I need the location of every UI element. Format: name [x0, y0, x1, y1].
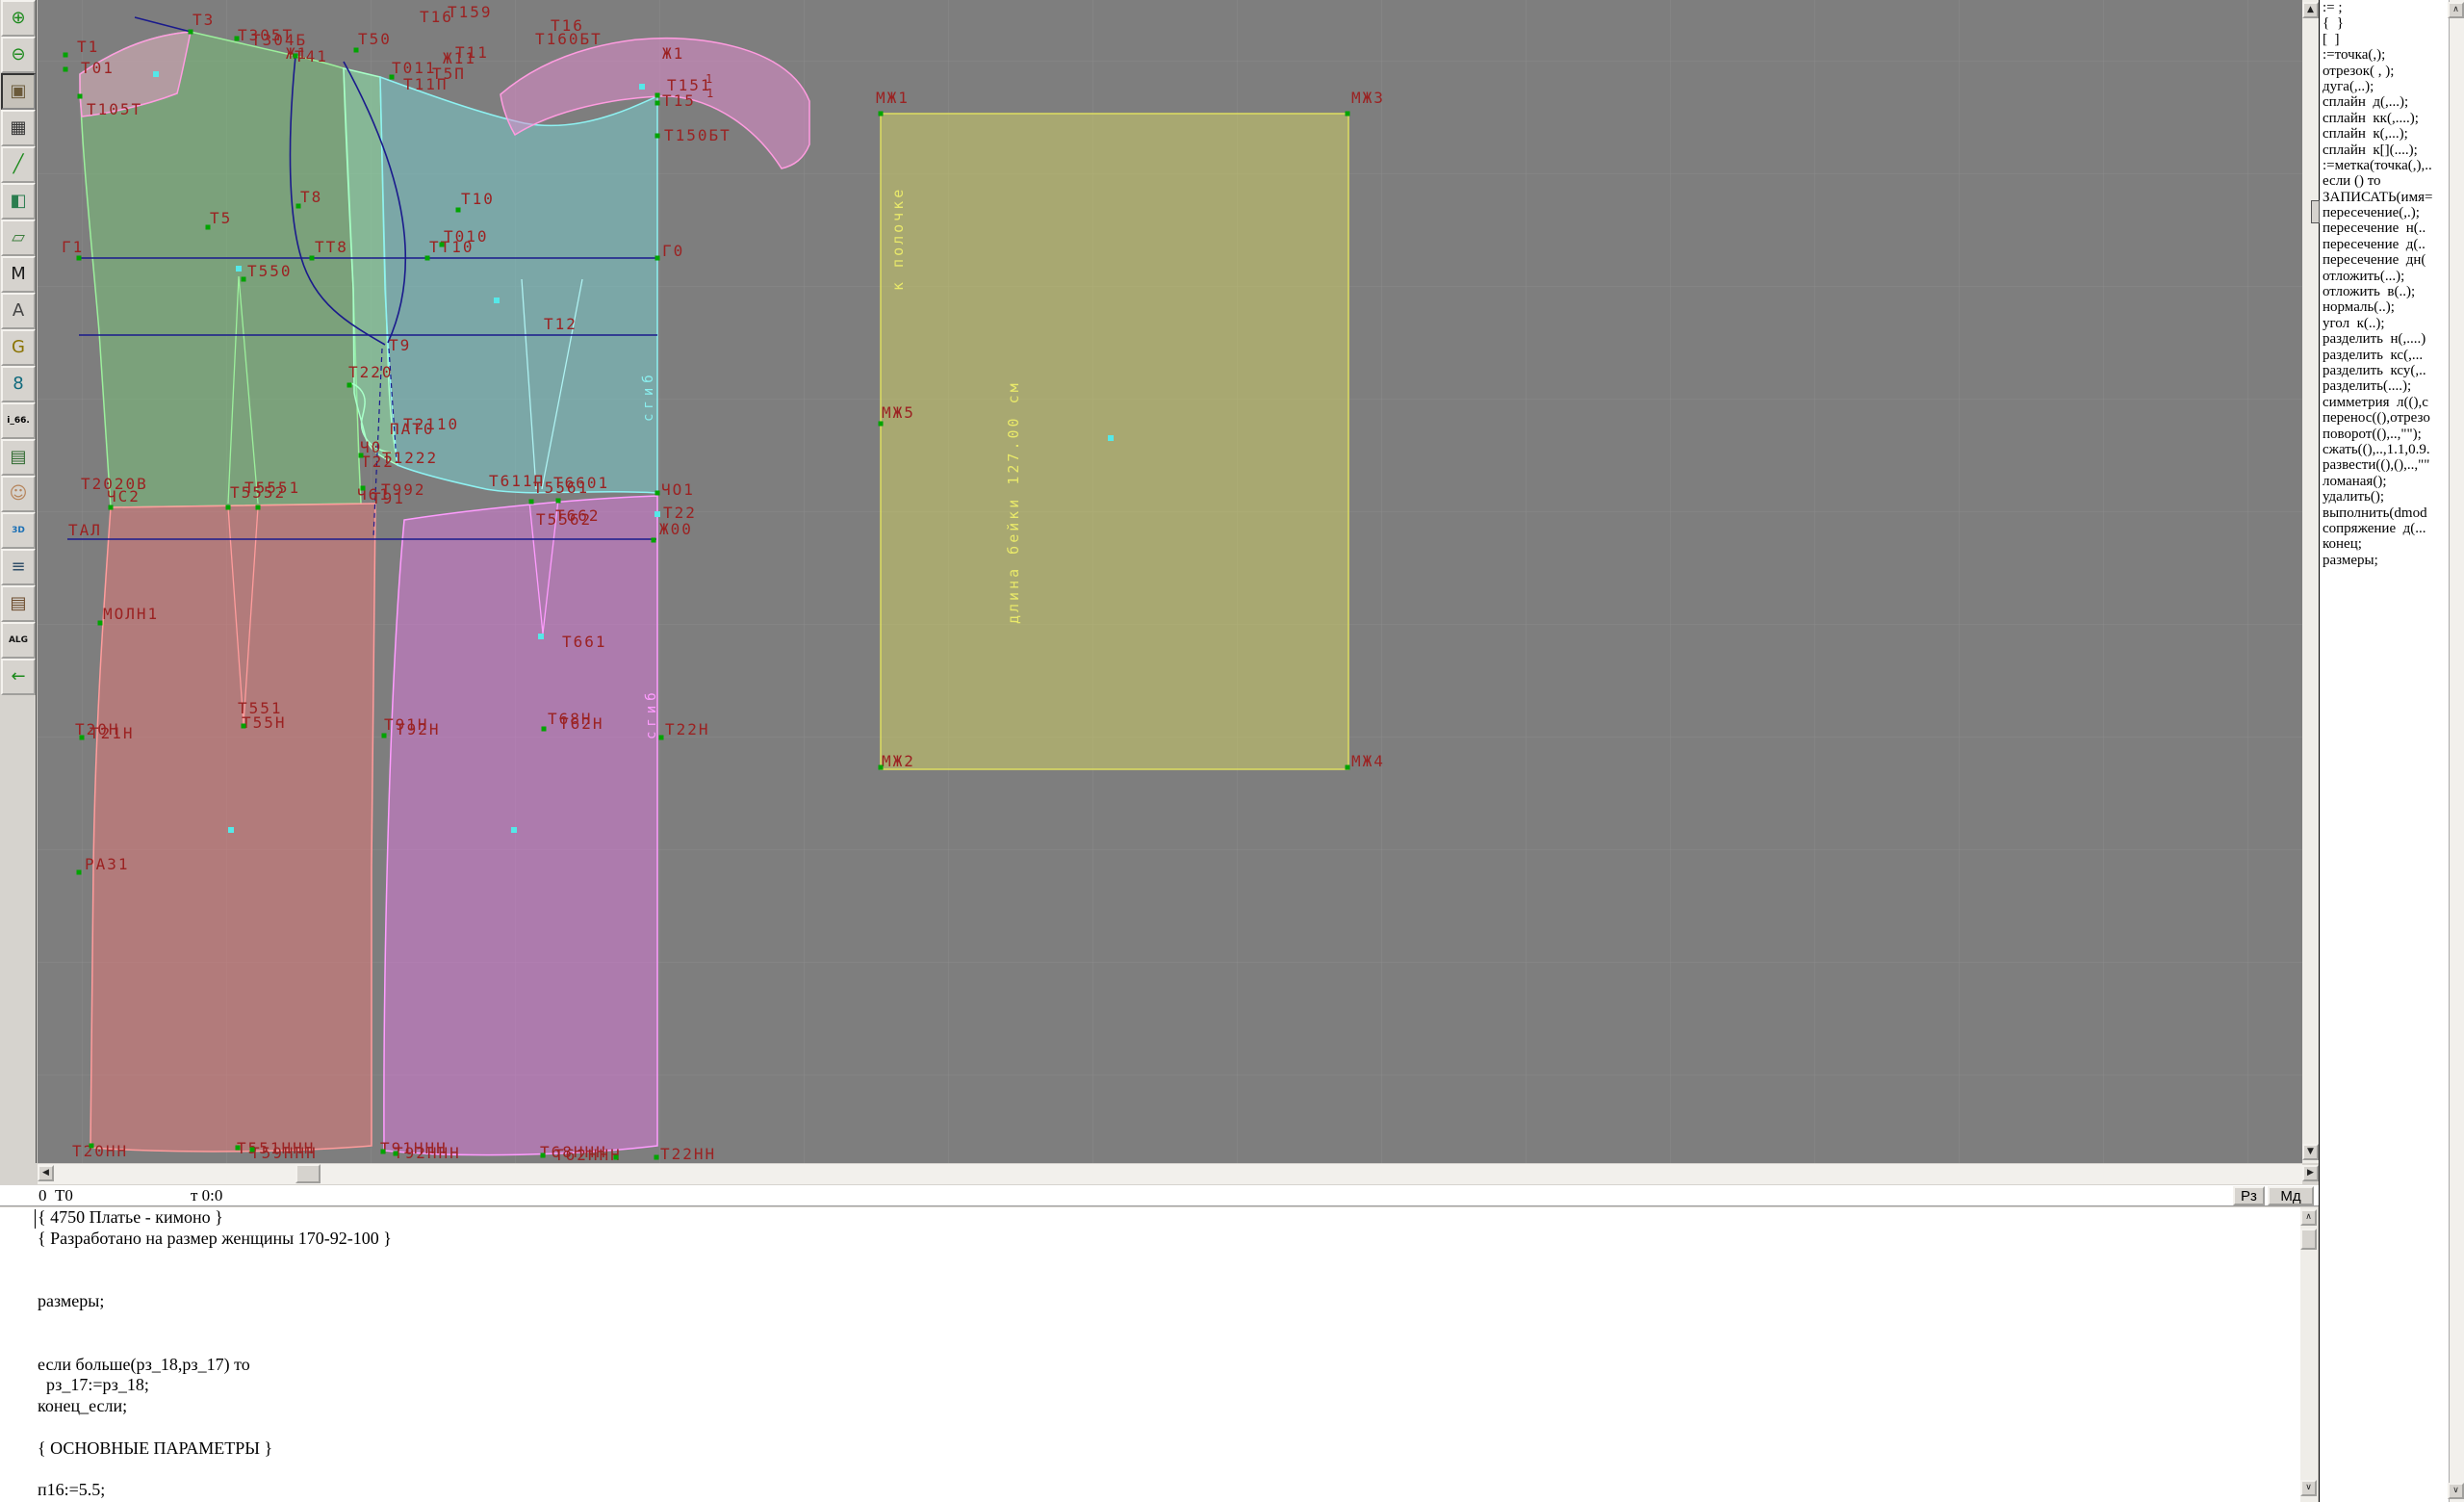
editor-line: рз_17:=рз_18;: [38, 1375, 2300, 1396]
pattern-point: [347, 383, 352, 388]
g-curves-icon[interactable]: G: [1, 329, 36, 366]
rz-button[interactable]: Рз: [2233, 1186, 2265, 1205]
point-label: Т01: [81, 59, 115, 77]
left-toolbar: ⊕⊖▣▦╱◧▱MAG8i_66.▤☺3D≡▤ALG←: [0, 0, 37, 1163]
exit-icon[interactable]: ←: [1, 659, 36, 695]
list-icon[interactable]: ≡: [1, 549, 36, 585]
piece-board-icon[interactable]: ▱: [1, 220, 36, 256]
point-label: Т1: [77, 38, 99, 56]
text-caret: [35, 1209, 36, 1229]
pattern-point: [538, 634, 544, 639]
pattern-point: [655, 101, 660, 106]
pattern-point: [654, 511, 660, 517]
command-item[interactable]: конец;: [2320, 536, 2449, 552]
point-label: МЖ5: [882, 403, 915, 422]
point-label: Т62Н: [559, 714, 604, 733]
command-item[interactable]: поворот((),..,"");: [2320, 427, 2449, 442]
point-label: Т62ННН: [554, 1146, 622, 1163]
point-label: Г1: [62, 238, 84, 256]
pattern-point: [614, 1155, 619, 1160]
piece-board-icon: ▱: [12, 229, 25, 246]
zoom-out-icon: ⊖: [11, 46, 25, 64]
pattern-point: [511, 827, 517, 833]
point-label: Г0: [662, 242, 684, 260]
point-label: Т20НН: [72, 1142, 128, 1160]
point-label: Т92ННН: [394, 1144, 461, 1162]
status-cursor: т 0:0: [191, 1186, 222, 1205]
flip-picture-icon[interactable]: ◧: [1, 183, 36, 220]
pattern-point: [655, 93, 660, 98]
command-item[interactable]: угол к(..);: [2320, 316, 2449, 331]
pattern-point: [296, 204, 301, 209]
pattern-point: [879, 112, 884, 117]
pattern-point: [242, 277, 246, 282]
command-item[interactable]: пересечение д(..: [2320, 237, 2449, 252]
point-label: Т15: [662, 91, 696, 110]
command-item[interactable]: отложить(...);: [2320, 269, 2449, 284]
pattern-point: [879, 422, 884, 427]
point-label: Т6601: [553, 474, 609, 492]
view-piece-icon: ▣: [10, 83, 26, 100]
i66-icon: i_66.: [7, 417, 30, 426]
pattern-point: [64, 53, 68, 58]
point-label: ЧО1: [661, 480, 695, 499]
scroll-right-button[interactable]: ▶: [2302, 1165, 2319, 1181]
editor-scroll-up[interactable]: ∧: [2300, 1209, 2317, 1226]
pattern-point: [529, 500, 534, 505]
segment-icon[interactable]: ╱: [1, 146, 36, 183]
point-label: Т992: [381, 480, 426, 499]
point-label: МЖ1: [876, 89, 910, 107]
pattern-point: [242, 724, 246, 729]
pattern-point: [879, 765, 884, 770]
point-label: МЖ4: [1351, 752, 1385, 770]
point-label: Т5551: [244, 479, 300, 497]
pattern-point: [90, 1144, 94, 1149]
point-label: Т21Н: [90, 724, 135, 742]
pattern-m-icon[interactable]: M: [1, 256, 36, 293]
command-item[interactable]: перенос((),отрезо: [2320, 410, 2449, 426]
point-label: Ж1: [662, 44, 684, 63]
command-item[interactable]: пересечение н(..: [2320, 220, 2449, 236]
point-label: МОЛН1: [103, 605, 159, 623]
command-item[interactable]: симметрия л((),с: [2320, 395, 2449, 410]
point-label: Т11: [455, 43, 489, 62]
canvas-hscrollbar[interactable]: [38, 1164, 2302, 1184]
zoom-out-icon[interactable]: ⊖: [1, 37, 36, 73]
point-label: Т150БТ: [664, 126, 731, 144]
command-item[interactable]: дуга(,..);: [2320, 79, 2449, 94]
command-item[interactable]: пересечение дн(: [2320, 252, 2449, 268]
command-item[interactable]: ломаная();: [2320, 474, 2449, 489]
command-item[interactable]: сплайн к(,...);: [2320, 126, 2449, 142]
point-label: Т22НН: [660, 1145, 716, 1163]
pattern-canvas[interactable]: Т1Т01Т105ТТ3Т305ТТ304БЖ1Т41Т50Т011Т11ПТ5…: [38, 0, 2302, 1163]
alg-icon[interactable]: ALG: [1, 622, 36, 659]
command-item[interactable]: :=метка(точка(,),..: [2320, 158, 2449, 173]
command-item[interactable]: [ ]: [2320, 32, 2449, 47]
point-label: Т59ННН: [250, 1144, 318, 1162]
ruler-8-icon: 8: [13, 375, 23, 393]
command-item[interactable]: выполнить(dmod: [2320, 505, 2449, 521]
pattern-point: [354, 48, 359, 53]
piece-binding-rect[interactable]: [881, 114, 1348, 769]
editor-vscrollbar[interactable]: [2300, 1207, 2318, 1502]
pattern-point: [556, 499, 561, 504]
pattern-point: [153, 71, 159, 77]
segment-icon: ╱: [13, 156, 24, 173]
point-label: МЖ3: [1351, 89, 1385, 107]
pattern-point: [659, 736, 664, 740]
pattern-point: [652, 538, 656, 543]
point-label: РАЗ1: [85, 855, 130, 873]
point-label: Т55Н: [242, 713, 287, 732]
drafting-a-icon: A: [13, 302, 24, 320]
command-item[interactable]: сплайн д(,...);: [2320, 94, 2449, 110]
command-list-panel: := ;{ }[ ]:=точка(,);отрезок( , );дуга(,…: [2319, 0, 2449, 1502]
pattern-point: [206, 225, 211, 230]
editor-line: [38, 1250, 2300, 1271]
command-item[interactable]: нормаль(..);: [2320, 299, 2449, 315]
pattern-point: [639, 84, 645, 90]
editor-line: [38, 1460, 2300, 1481]
status-left: 0 Т0: [38, 1186, 73, 1205]
point-label: Т662: [555, 506, 601, 525]
point-label: длина бейки 127.00 см: [1005, 380, 1022, 624]
pattern-point: [654, 1155, 659, 1160]
photo-icon[interactable]: ☺: [1, 476, 36, 512]
ruler-8-icon[interactable]: 8: [1, 366, 36, 402]
pattern-point: [77, 256, 82, 261]
command-item[interactable]: развести((),(),..,"": [2320, 457, 2449, 473]
point-label: Т105Т: [87, 100, 142, 118]
editor-line: конец_если;: [38, 1396, 2300, 1417]
pattern-point: [542, 727, 547, 732]
photo-icon: ☺: [10, 485, 28, 503]
point-label: к полочке: [889, 187, 907, 291]
panel-splitter[interactable]: [2311, 200, 2320, 223]
panel-scroll-down[interactable]: ∨: [2448, 1483, 2464, 1499]
pattern-point: [310, 256, 315, 261]
point-label: Т50: [358, 30, 392, 48]
command-item[interactable]: сплайн кк(,....);: [2320, 111, 2449, 126]
editor-line: { Разработано на размер женщины 170-92-1…: [38, 1229, 2300, 1250]
command-item[interactable]: { }: [2320, 15, 2449, 31]
point-label: Т550: [247, 262, 293, 280]
pattern-point: [425, 256, 430, 261]
point-label: ЧС2: [107, 487, 141, 505]
point-label: Т10: [461, 190, 495, 208]
pattern-m-icon: M: [11, 266, 26, 283]
editor-line: [38, 1417, 2300, 1438]
pattern-point: [1346, 765, 1350, 770]
pattern-point: [655, 134, 660, 139]
point-label: Т220: [348, 363, 394, 381]
command-item[interactable]: := ;: [2320, 0, 2449, 15]
point-label: Т1222: [382, 449, 438, 467]
threed-icon[interactable]: 3D: [1, 512, 36, 549]
pattern-point: [294, 54, 298, 59]
pattern-point: [64, 67, 68, 72]
editor-line: { 4750 Платье - кимоно }: [38, 1207, 2300, 1229]
command-item[interactable]: разделить кс(,...: [2320, 348, 2449, 363]
pattern-point: [77, 870, 82, 875]
pattern-point: [382, 734, 387, 738]
pattern-point: [80, 736, 85, 740]
status-bar: 0 Т0 т 0:0 Рз Мд: [0, 1185, 2319, 1206]
table-icon: ▤: [10, 449, 26, 466]
point-label: Т661: [562, 633, 607, 651]
scroll-left-button[interactable]: ◀: [38, 1165, 54, 1181]
point-label: Т2110: [403, 415, 459, 433]
pattern-point: [394, 1152, 398, 1156]
books-icon[interactable]: ▤: [1, 585, 36, 622]
pattern-point: [1108, 435, 1114, 441]
command-item[interactable]: пересечение(,.);: [2320, 205, 2449, 220]
panel-vscrollbar[interactable]: [2449, 0, 2464, 1502]
grid-icon[interactable]: ▦: [1, 110, 36, 146]
command-item[interactable]: сопряжение д(...: [2320, 521, 2449, 536]
editor-scroll-thumb[interactable]: [2300, 1229, 2317, 1250]
point-label: Т41: [295, 47, 328, 65]
pattern-point: [381, 1150, 386, 1154]
pattern-point: [235, 37, 240, 41]
command-item[interactable]: если () то: [2320, 173, 2449, 189]
editor-scroll-down[interactable]: ∨: [2300, 1480, 2317, 1496]
command-item[interactable]: удалить();: [2320, 489, 2449, 505]
command-item[interactable]: сжать((),..,1.1,0.9.: [2320, 442, 2449, 457]
point-label: МЖ2: [882, 752, 915, 770]
pattern-point: [359, 453, 364, 458]
pattern-point: [98, 621, 103, 626]
piece-front-skirt[interactable]: [384, 496, 657, 1155]
md-button[interactable]: Мд: [2268, 1186, 2314, 1205]
pattern-point: [655, 256, 660, 261]
point-label: Т22Н: [665, 720, 710, 738]
point-label: 1: [706, 87, 715, 100]
point-label: Т3: [192, 11, 215, 29]
pattern-point: [361, 486, 366, 491]
drafting-a-icon[interactable]: A: [1, 293, 36, 329]
pattern-point: [655, 491, 660, 496]
point-label: Т160БТ: [535, 30, 603, 48]
books-icon: ▤: [10, 595, 26, 612]
pattern-point: [228, 827, 234, 833]
pattern-point: [541, 1153, 546, 1158]
point-label: 1: [706, 72, 714, 86]
command-item[interactable]: ЗАПИСАТЬ(имя=: [2320, 190, 2449, 205]
pattern-point: [226, 505, 231, 510]
editor-line: [38, 1312, 2300, 1334]
zoom-in-icon: ⊕: [11, 10, 25, 27]
editor-line: [38, 1334, 2300, 1355]
pattern-point: [78, 94, 83, 99]
pattern-point: [189, 30, 193, 35]
grid-icon: ▦: [10, 119, 26, 137]
pattern-point: [440, 243, 445, 247]
flip-picture-icon: ◧: [10, 193, 26, 210]
scroll-up-button[interactable]: ▲: [2302, 2, 2319, 18]
point-label: Ж00: [659, 520, 693, 538]
editor-line: [38, 1270, 2300, 1291]
point-label: сгиб: [641, 370, 656, 422]
exit-icon: ←: [11, 668, 25, 686]
view-piece-icon[interactable]: ▣: [1, 73, 36, 110]
table-icon[interactable]: ▤: [1, 439, 36, 476]
point-label: ТАЛ: [68, 521, 102, 539]
hscroll-thumb[interactable]: [295, 1164, 321, 1183]
panel-scroll-up[interactable]: ∧: [2448, 2, 2464, 18]
point-label: Т5: [210, 209, 232, 227]
point-label: Т9: [389, 336, 411, 354]
editor-line: { ОСНОВНЫЕ ПАРАМЕТРЫ }: [38, 1438, 2300, 1460]
command-item[interactable]: отрезок( , );: [2320, 64, 2449, 79]
point-label: сгиб: [644, 687, 659, 739]
point-label: Т92Н: [396, 720, 441, 738]
editor-line: п16:=5.5;: [38, 1480, 2300, 1501]
point-label: Т12: [544, 315, 577, 333]
pattern-point: [236, 1146, 241, 1151]
point-label: Т159: [448, 3, 493, 21]
point-label: ТТ8: [315, 238, 348, 256]
list-icon: ≡: [11, 558, 25, 576]
threed-icon: 3D: [12, 527, 25, 535]
canvas-vscrollbar[interactable]: [2302, 0, 2319, 1163]
editor-line: размеры;: [38, 1291, 2300, 1312]
script-editor[interactable]: { 4750 Платье - кимоно }{ Разработано на…: [0, 1207, 2300, 1502]
command-item[interactable]: разделить(....);: [2320, 378, 2449, 394]
pattern-point: [109, 505, 114, 510]
g-curves-icon: G: [12, 339, 25, 356]
pattern-point: [256, 505, 261, 510]
drawing-canvas[interactable]: Т1Т01Т105ТТ3Т305ТТ304БЖ1Т41Т50Т011Т11ПТ5…: [38, 0, 2302, 1163]
command-item[interactable]: разделить ксу(,..: [2320, 363, 2449, 378]
pattern-point: [494, 298, 500, 303]
zoom-in-icon[interactable]: ⊕: [1, 0, 36, 37]
command-item[interactable]: разделить н(,....): [2320, 331, 2449, 347]
scroll-down-button[interactable]: ▼: [2302, 1144, 2319, 1160]
pattern-point: [250, 1148, 255, 1152]
point-label: Т8: [300, 188, 322, 206]
command-item[interactable]: размеры;: [2320, 553, 2449, 568]
pattern-point: [456, 208, 461, 213]
pattern-point: [1346, 112, 1350, 117]
command-item[interactable]: отложить в(..);: [2320, 284, 2449, 299]
pattern-point: [236, 266, 242, 272]
i66-icon[interactable]: i_66.: [1, 402, 36, 439]
alg-icon: ALG: [9, 636, 28, 645]
point-label: ТТ10: [429, 238, 475, 256]
command-item[interactable]: :=точка(,);: [2320, 47, 2449, 63]
editor-line: если больше(рз_18,рз_17) то: [38, 1355, 2300, 1376]
command-item[interactable]: сплайн к[](....);: [2320, 142, 2449, 158]
pattern-point: [390, 75, 395, 80]
